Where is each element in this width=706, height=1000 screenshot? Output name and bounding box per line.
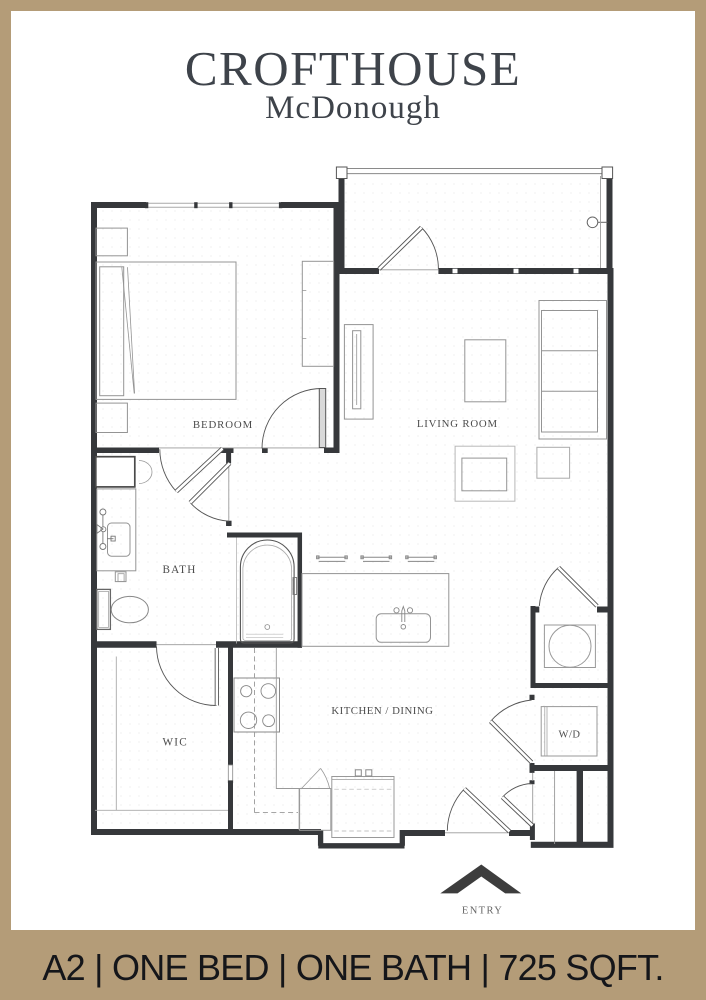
svg-text:WIC: WIC — [163, 737, 188, 749]
svg-text:BEDROOM: BEDROOM — [193, 419, 253, 431]
svg-text:W/D: W/D — [559, 730, 581, 741]
svg-text:LIVING ROOM: LIVING ROOM — [417, 418, 498, 430]
svg-text:BATH: BATH — [162, 564, 196, 576]
svg-text:ENTRY: ENTRY — [462, 906, 503, 917]
svg-text:KITCHEN / DINING: KITCHEN / DINING — [331, 705, 433, 717]
